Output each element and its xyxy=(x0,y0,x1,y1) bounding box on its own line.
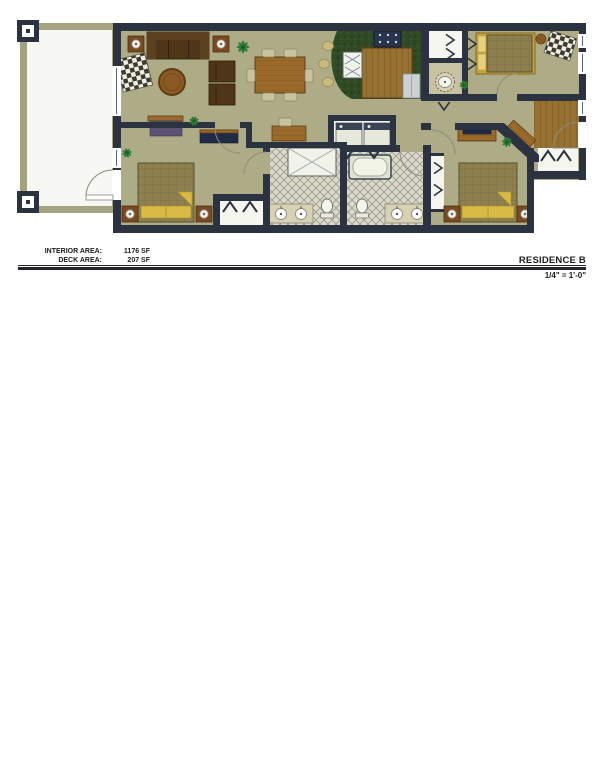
interior-area-value: 1176 SF xyxy=(102,248,150,257)
interior-area-row: INTERIOR AREA: 1176 SF xyxy=(26,248,166,257)
area-table: INTERIOR AREA: 1176 SF DECK AREA: 207 SF xyxy=(26,248,166,265)
floor-plan-sheet: INTERIOR AREA: 1176 SF DECK AREA: 207 SF… xyxy=(0,0,600,777)
deck-area-label: DECK AREA: xyxy=(26,257,102,266)
divider-line-thin xyxy=(18,265,586,266)
scale-note: 1/4" = 1'-0" xyxy=(545,271,586,280)
deck-area-row: DECK AREA: 207 SF xyxy=(26,257,166,266)
deck-area-value: 207 SF xyxy=(102,257,150,266)
interior-area-label: INTERIOR AREA: xyxy=(26,248,102,257)
title-block: INTERIOR AREA: 1176 SF DECK AREA: 207 SF… xyxy=(0,0,600,777)
divider-line-thick xyxy=(18,267,586,270)
residence-title: RESIDENCE B xyxy=(519,255,586,266)
